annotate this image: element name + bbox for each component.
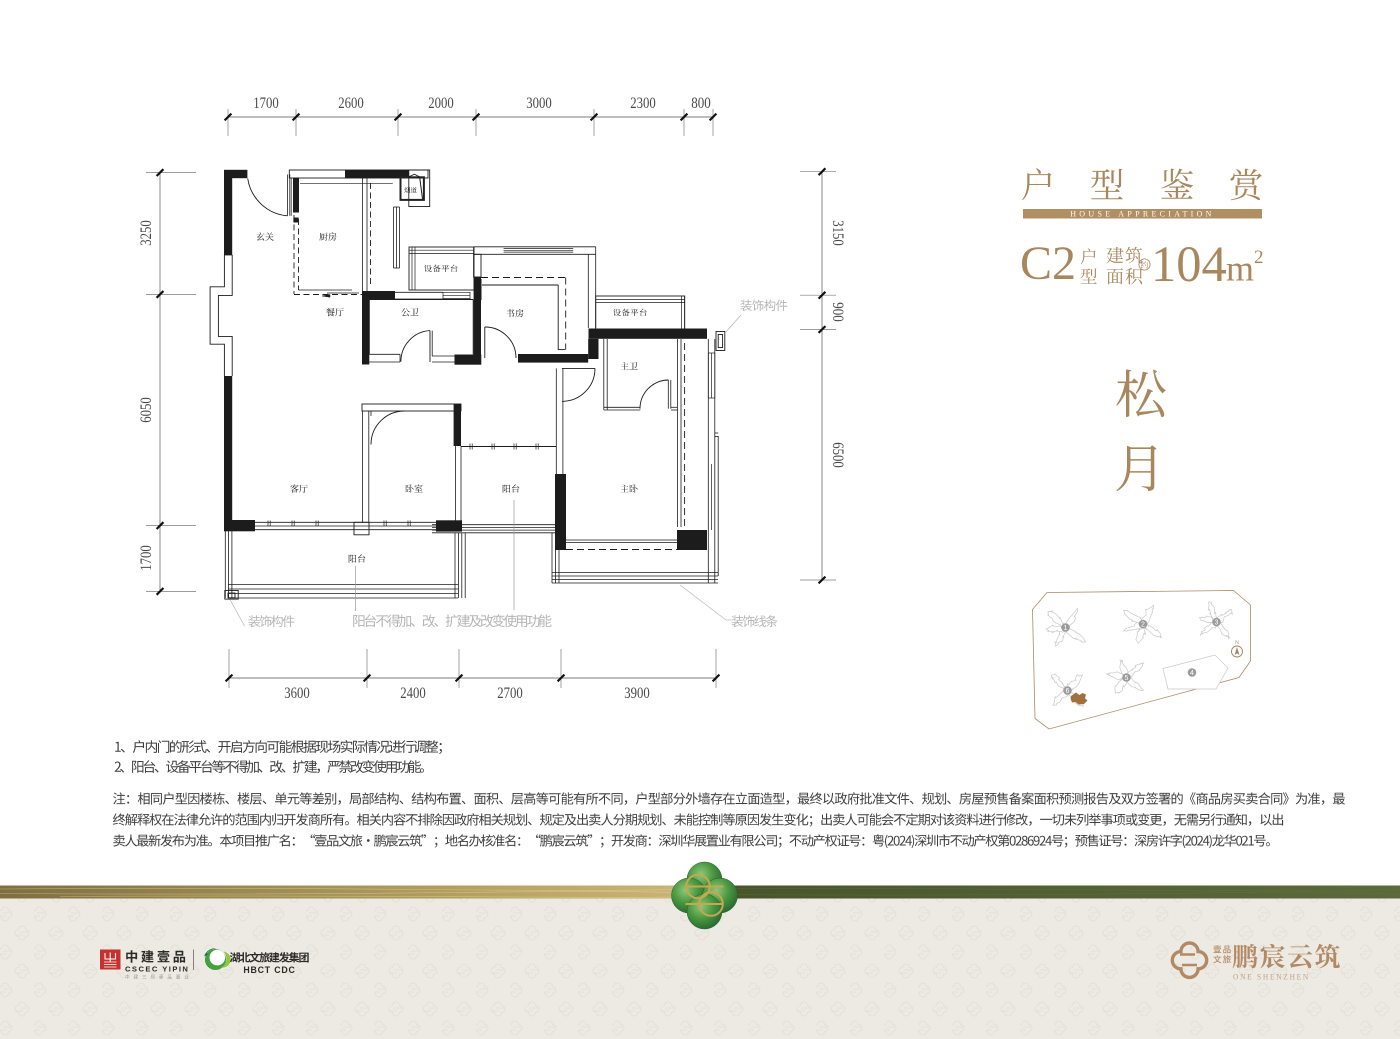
svg-text:HOUSE APPRECIATION: HOUSE APPRECIATION (1070, 210, 1215, 219)
svg-text:4: 4 (1190, 670, 1194, 677)
svg-text:2: 2 (1141, 622, 1145, 629)
svg-text:3600: 3600 (284, 684, 310, 702)
svg-text:800: 800 (691, 94, 711, 112)
svg-text:2000: 2000 (428, 94, 454, 112)
svg-text:2300: 2300 (630, 94, 656, 112)
svg-text:3000: 3000 (526, 94, 552, 112)
svg-text:1: 1 (1064, 625, 1068, 632)
svg-text:m: m (1226, 249, 1254, 289)
svg-text:6: 6 (1066, 688, 1070, 695)
svg-text:3250: 3250 (137, 220, 155, 246)
svg-text:900: 900 (829, 302, 847, 322)
svg-text:2600: 2600 (338, 94, 364, 112)
svg-text:6050: 6050 (137, 397, 155, 423)
svg-text:C2: C2 (1020, 237, 1076, 290)
svg-text:2400: 2400 (400, 684, 426, 702)
svg-text:1700: 1700 (137, 545, 155, 571)
svg-text:6500: 6500 (829, 442, 847, 468)
svg-text:5: 5 (1125, 675, 1129, 682)
svg-text:中 建 三 局 壹 品 置 业: 中 建 三 局 壹 品 置 业 (125, 974, 190, 981)
svg-text:1700: 1700 (253, 94, 279, 112)
svg-text:ONE SHENZHEN: ONE SHENZHEN (1233, 972, 1310, 982)
svg-text:2700: 2700 (497, 684, 523, 702)
svg-text:3: 3 (1215, 620, 1219, 627)
svg-text:CSCEC YIPIN: CSCEC YIPIN (125, 965, 189, 974)
svg-text:104: 104 (1151, 236, 1227, 292)
svg-text:3900: 3900 (624, 684, 650, 702)
svg-text:3150: 3150 (829, 220, 847, 246)
svg-text:N: N (1235, 640, 1239, 646)
svg-text:HBCT CDC: HBCT CDC (243, 965, 295, 975)
svg-text:2: 2 (1254, 247, 1264, 268)
